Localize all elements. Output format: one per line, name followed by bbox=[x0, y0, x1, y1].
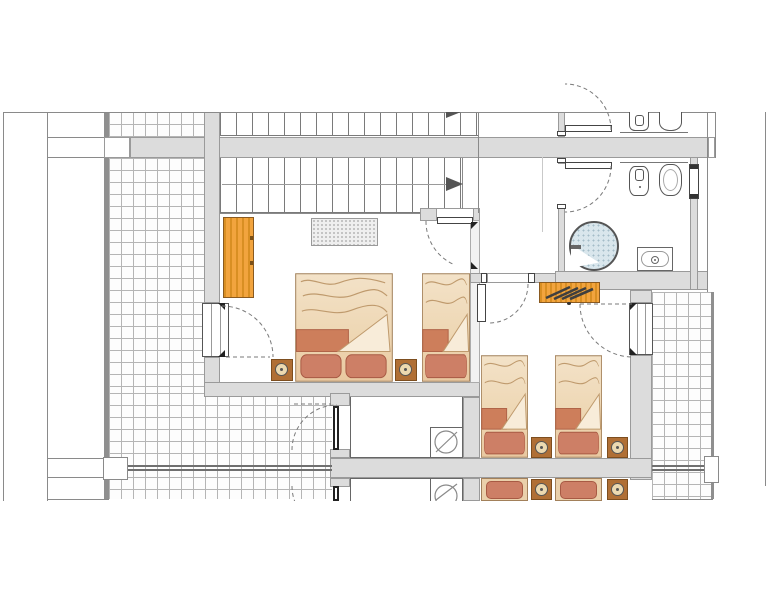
nightstand-5-mirrored bbox=[531, 479, 552, 500]
wall-corner-stub bbox=[708, 137, 715, 158]
plan-bottom-edge-right bbox=[652, 499, 713, 500]
lamp-icon bbox=[535, 441, 548, 454]
window-bathroom bbox=[689, 164, 699, 199]
wall-terrace-door-top bbox=[330, 393, 350, 406]
left-partywall-line-top bbox=[47, 458, 104, 459]
partition-jamb-mark-top bbox=[471, 222, 478, 229]
bedroom1-top-line bbox=[220, 213, 420, 214]
terrace-left-tiles-upper bbox=[109, 112, 204, 137]
lamp-icon bbox=[611, 483, 624, 496]
nightstand-2 bbox=[395, 359, 417, 381]
door-terrace-laundry-mirrored bbox=[333, 486, 339, 501]
terrace-landing-opening bbox=[104, 137, 130, 158]
dresser bbox=[311, 218, 378, 246]
bedroom1-double-bed bbox=[295, 273, 393, 382]
stairs-walking-line bbox=[222, 184, 446, 185]
arc-bedroom2-terrace-door bbox=[580, 304, 633, 357]
arc-bathroom-door bbox=[565, 166, 611, 212]
railing-right-bottom bbox=[652, 469, 708, 471]
door-leaf-bedroom2 bbox=[477, 284, 486, 322]
terrace-left-edge-lower bbox=[104, 158, 109, 499]
left-setback-line bbox=[47, 112, 48, 501]
bathroom-shelf-line bbox=[620, 162, 688, 163]
mirrored-bed-right bbox=[555, 478, 602, 501]
left-partywall-line-bottom bbox=[47, 477, 104, 478]
wardrobe bbox=[223, 217, 254, 298]
radiator-valve-dot bbox=[567, 302, 571, 305]
radiator-slats-icon bbox=[539, 282, 600, 303]
stairs-lower-flight bbox=[220, 158, 462, 213]
stairs-upper-flight bbox=[220, 112, 478, 136]
railing-left-top bbox=[128, 465, 332, 467]
nightstand-4 bbox=[607, 437, 628, 458]
bedroom2-single-bed-right bbox=[555, 355, 602, 458]
terrace-right-tiles bbox=[652, 292, 711, 499]
railing-post-left bbox=[103, 457, 128, 480]
railing-right-top bbox=[652, 465, 708, 467]
door-terrace-laundry bbox=[333, 406, 339, 450]
washing-machine-drum-mirrored-icon bbox=[430, 478, 463, 501]
bedroom2-single-bed-left bbox=[481, 355, 528, 458]
wardrobe-handle-top bbox=[250, 236, 253, 240]
bedroom1-single-bed bbox=[422, 273, 470, 382]
railing-left-bottom bbox=[128, 469, 332, 471]
bidet-mirrored bbox=[629, 112, 649, 131]
plan-left-boundary-line bbox=[3, 112, 4, 501]
railing-post-right bbox=[704, 456, 719, 483]
door-leaf-bathroom bbox=[565, 162, 612, 169]
jamb-bedroom2-right bbox=[528, 273, 535, 283]
left-band-line-bottom bbox=[47, 157, 104, 158]
wall-party bbox=[330, 458, 652, 478]
exterior-corner-line bbox=[715, 112, 716, 158]
arc-bedroom2-door bbox=[489, 284, 528, 323]
door-leaf-bedroom1 bbox=[437, 217, 473, 224]
plan-crop-mask bbox=[0, 501, 768, 614]
washing-machine-drum-icon bbox=[430, 427, 463, 458]
window-bedroom1-mark-bottom bbox=[218, 350, 225, 357]
terrace-left-tiles-lower bbox=[109, 393, 332, 499]
window-bedroom2-mark-bottom bbox=[630, 348, 637, 355]
plan-right-boundary-line bbox=[765, 112, 766, 486]
lamp-icon bbox=[275, 363, 288, 376]
plan-bottom-edge-left bbox=[47, 499, 109, 500]
left-band-line-top bbox=[47, 137, 104, 138]
window-bedroom1-mark-top bbox=[218, 303, 225, 310]
mirrored-shelf-line bbox=[620, 132, 688, 133]
wall-laundry-right bbox=[463, 397, 480, 458]
toilet-mirrored bbox=[659, 112, 682, 131]
nightstand-3 bbox=[531, 437, 552, 458]
lamp-icon bbox=[535, 483, 548, 496]
mirrored-bed-left bbox=[481, 478, 528, 501]
bidet bbox=[629, 166, 649, 196]
jamb-bathroom-bottom bbox=[557, 204, 566, 209]
window-bedroom1 bbox=[202, 303, 229, 357]
plan-top-edge-line bbox=[3, 112, 715, 113]
doorway-bedroom2 bbox=[487, 274, 529, 282]
window-bedroom2-mark-top bbox=[630, 303, 637, 310]
floor-plan bbox=[0, 0, 768, 614]
shower-head-icon bbox=[571, 245, 581, 249]
wall-bedroom2-right-upper bbox=[630, 290, 652, 303]
arc-bedroom1-window-door bbox=[222, 306, 273, 357]
hall-void-line bbox=[542, 157, 543, 232]
lamp-icon bbox=[611, 441, 624, 454]
terrace-left-edge-upper bbox=[104, 112, 109, 137]
jamb-bathroom-top bbox=[557, 158, 566, 163]
wardrobe-handle-bottom bbox=[250, 261, 253, 265]
toilet bbox=[659, 164, 682, 196]
arc-mirrored-bathroom-door bbox=[565, 84, 611, 130]
door-leaf-mirrored-bathroom bbox=[565, 125, 612, 132]
jamb-bedroom2-left bbox=[481, 273, 487, 283]
sink bbox=[637, 247, 673, 271]
stairs-direction-arrow bbox=[446, 177, 463, 191]
wall-bathroom-right-bottom bbox=[690, 198, 698, 290]
nightstand-6-mirrored bbox=[607, 479, 628, 500]
terrace-left-tiles-middle bbox=[109, 158, 204, 393]
arc-bedroom1-door bbox=[426, 221, 455, 265]
lamp-icon bbox=[399, 363, 412, 376]
nightstand-1 bbox=[271, 359, 293, 381]
wall-bedroom1-left-upper bbox=[204, 112, 220, 303]
jamb-mirrored-bathroom bbox=[557, 131, 566, 136]
partition-jamb-mark-bottom bbox=[471, 262, 478, 269]
stairwell-right-wall-line bbox=[478, 112, 479, 213]
wall-laundry-right-mirrored bbox=[463, 478, 480, 501]
stairs-upper-arrow-remnant bbox=[446, 112, 461, 118]
wall-terrace-door-bottom bbox=[330, 449, 350, 458]
